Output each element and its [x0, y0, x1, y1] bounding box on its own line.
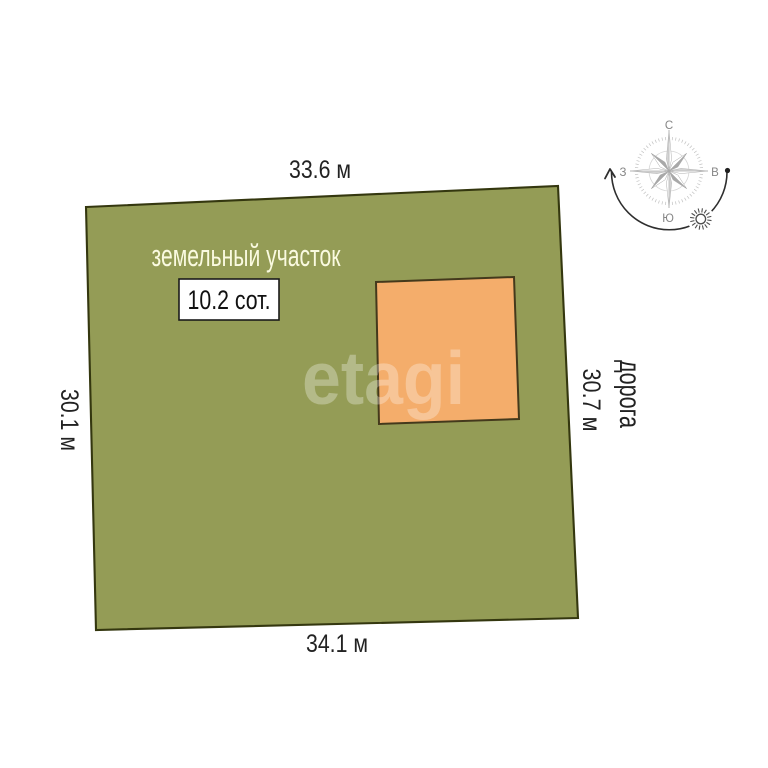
svg-text:З: З [620, 167, 627, 179]
svg-text:30.1 м: 30.1 м [55, 389, 83, 451]
svg-text:Ю: Ю [662, 213, 674, 225]
svg-text:дорога: дорога [613, 360, 646, 428]
svg-text:30.7 м: 30.7 м [577, 369, 605, 432]
svg-text:10.2 сот.: 10.2 сот. [188, 285, 271, 315]
svg-text:33.6 м: 33.6 м [289, 156, 351, 184]
svg-text:34.1 м: 34.1 м [306, 630, 368, 658]
svg-text:etagi: etagi [302, 336, 465, 420]
svg-text:земельный участок: земельный участок [152, 238, 341, 273]
svg-text:В: В [711, 167, 719, 179]
svg-text:С: С [665, 120, 673, 132]
